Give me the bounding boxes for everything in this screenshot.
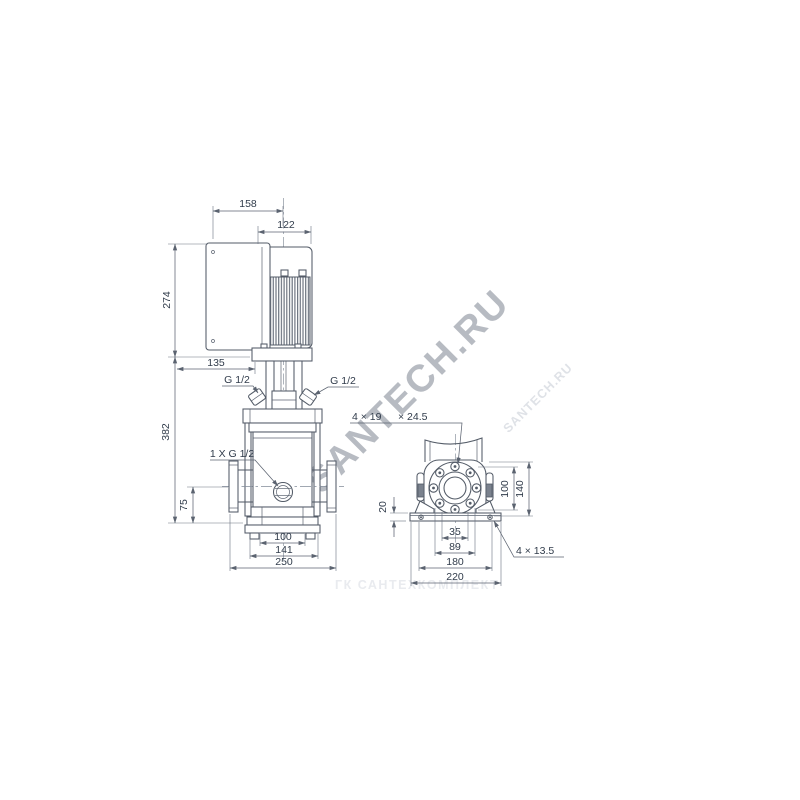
watermark-small: SANTECH.RU — [501, 361, 576, 436]
dim-220-label: 220 — [446, 571, 464, 583]
dim-140-label: 140 — [514, 480, 526, 498]
watermark-bottom: ГК САНТЕХКОМПЛЕКТ — [335, 578, 499, 592]
dim-180-label: 180 — [446, 556, 464, 568]
dim-89-label: 89 — [449, 541, 461, 553]
motor-lug-2 — [299, 270, 306, 276]
pump-dimensional-drawing-page: SANTECH.RU SANTECH.RU ГК САНТЕХКОМПЛЕКТ — [0, 0, 800, 800]
dim-35-label: 35 — [449, 526, 461, 538]
dim-158-label: 158 — [239, 198, 257, 210]
flange-hole-depth-label: × 24.5 — [398, 411, 428, 423]
dim-100-side-label: 100 — [499, 480, 511, 498]
dim-135-label: 135 — [207, 357, 225, 369]
base-hole-label: 4 × 13.5 — [516, 545, 554, 557]
port-plug-left — [248, 388, 266, 406]
dim-274-label: 274 — [161, 291, 173, 309]
dim-122-label: 122 — [277, 219, 295, 231]
motor-lug-1 — [281, 270, 288, 276]
motor-fins — [270, 277, 310, 345]
motor-stool-plate — [252, 348, 312, 361]
dim-20-label: 20 — [377, 501, 389, 513]
terminal-box — [206, 243, 270, 350]
side-flange-tab-left — [418, 484, 424, 497]
pump-head-flange — [243, 409, 322, 423]
dim-100-front-label: 100 — [274, 531, 292, 543]
dim-75-label: 75 — [178, 499, 190, 511]
side-sleeve — [425, 438, 482, 462]
coupling — [272, 391, 296, 410]
front-foot-left — [250, 533, 259, 539]
port-left-label: G 1/2 — [224, 374, 250, 386]
side-flange-tab-right — [486, 484, 492, 497]
pump-technical-drawing: SANTECH.RU SANTECH.RU ГК САНТЕХКОМПЛЕКТ — [0, 0, 800, 800]
drain-label: 1 X G 1/2 — [210, 448, 255, 460]
dim-382-label: 382 — [160, 423, 172, 441]
pump-head-shoulder — [249, 423, 316, 432]
flange-hole-count-label: 4 × 19 — [352, 411, 382, 423]
front-foot-right — [306, 533, 315, 539]
port-right-label: G 1/2 — [330, 375, 356, 387]
dim-250-label: 250 — [275, 556, 293, 568]
dim-141-label: 141 — [275, 544, 293, 556]
drain-plug — [274, 483, 293, 502]
